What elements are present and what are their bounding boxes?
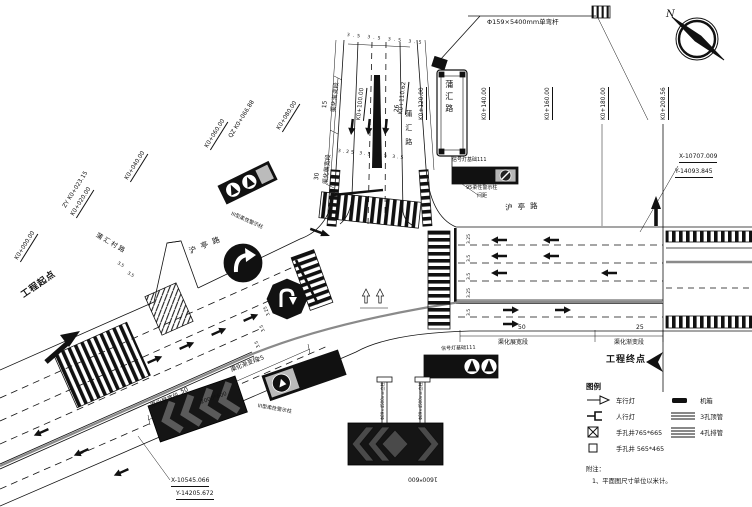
segment-label: 渠化渐变段	[614, 340, 644, 347]
vehicle-light-icon	[586, 394, 612, 406]
road-sign-name: 蒲汇路	[444, 80, 453, 116]
note-text: 1、平面图尺寸单位以米计。	[592, 476, 752, 485]
segment-label: 渠化展宽段	[498, 340, 528, 347]
lane-dim: 3.25	[468, 288, 473, 298]
legend-item: 手孔井765*665	[586, 426, 664, 438]
legend-item: 车行灯	[586, 394, 664, 406]
legend-item: 机箱	[670, 394, 723, 406]
dim-value: 50	[518, 325, 526, 332]
legend-item: 4孔排管	[670, 426, 723, 438]
dim-value: 30	[314, 172, 321, 180]
station-label: K0+160.00	[545, 87, 553, 120]
pipe-4hole-icon	[670, 426, 696, 438]
station-label: K0+180.00	[601, 87, 609, 120]
north-road-name: 蒲汇路	[404, 110, 412, 152]
dim-value: 15	[322, 100, 329, 108]
cabinet-icon	[670, 394, 696, 406]
road-plan-drawing: Φ159×5400mm单弯杆 N 蒲汇路 蒲汇路 沪亭路 沪亭路 蒲汇村路 工程…	[0, 0, 752, 507]
lane-dim: 3.5	[468, 309, 473, 316]
note-title: 附注：	[586, 464, 752, 473]
post-spec-label: Φ89×4500mm立柱	[419, 382, 423, 420]
station-label: K0+208.56	[661, 87, 669, 120]
handhole-large-icon	[586, 426, 612, 438]
flex-post-spacing-callout: 间距	[477, 194, 487, 200]
pedestrian-light-icon	[586, 410, 612, 422]
start-coord-x: X-10545.066	[171, 478, 209, 487]
dim-value: 25	[636, 325, 644, 332]
station-label: K0+120.00	[419, 87, 427, 120]
post-spec-label: Φ89×4500mm立柱	[381, 382, 385, 420]
lane-dim: 3.5	[468, 273, 473, 280]
legend-item: 3孔顶管	[670, 410, 723, 422]
pipe-3hole-icon	[670, 410, 696, 422]
start-coord-y: Y-14205.672	[176, 491, 214, 500]
chevron-size-label: 1600*600	[408, 475, 438, 482]
handhole-small-icon	[586, 442, 612, 454]
compass-north-label: N	[666, 9, 675, 20]
end-coord-y: Y-14093.845	[675, 169, 713, 178]
end-coord-x: X-10707.009	[679, 154, 717, 163]
legend-item: 人行灯	[586, 410, 664, 422]
legend: 图例 车行灯 人行灯 手孔井765*665 手孔井 565*465	[586, 381, 752, 485]
signal-base-callout: 信号灯基础111	[452, 158, 487, 164]
lane-dim: 3.25	[468, 234, 473, 244]
station-label: K0+140.00	[482, 87, 490, 120]
legend-item: 手孔井 565*465	[586, 442, 664, 454]
lane-dim: 3.5	[468, 255, 473, 262]
pole-spec-label: Φ159×5400mm单弯杆	[487, 19, 559, 26]
dim-value: 26	[394, 104, 401, 112]
project-end-label: 工程终点	[606, 356, 646, 366]
legend-title: 图例	[586, 381, 752, 392]
flex-post-callout: 95柔性警示柱	[466, 186, 497, 192]
